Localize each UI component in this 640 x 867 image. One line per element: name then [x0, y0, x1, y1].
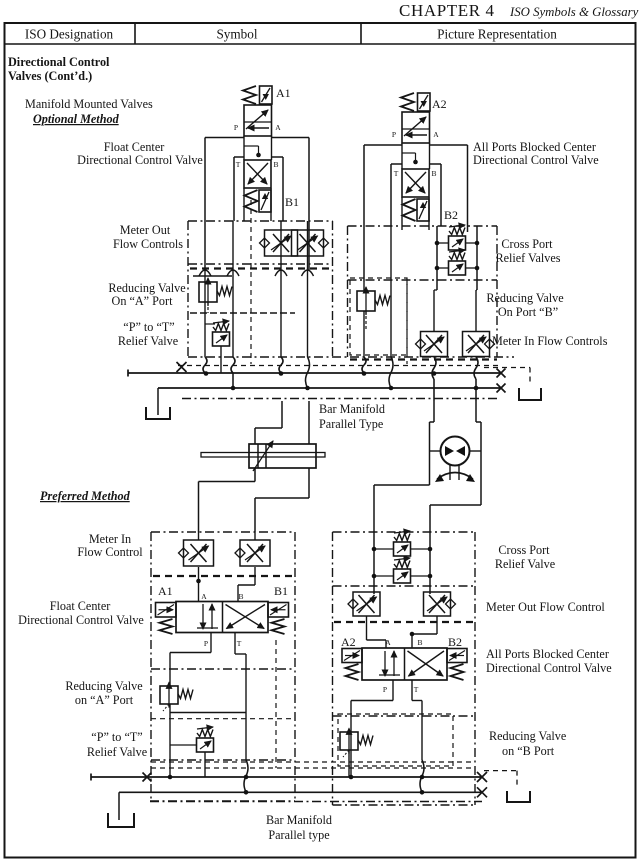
svg-text:Reducing Valve: Reducing Valve	[65, 679, 142, 693]
svg-text:Parallel type: Parallel type	[268, 828, 329, 842]
svg-text:On Port “B”: On Port “B”	[498, 305, 558, 319]
svg-text:Directional Control Valve: Directional Control Valve	[77, 153, 203, 167]
svg-text:T: T	[237, 639, 242, 648]
svg-text:Directional Control Valve: Directional Control Valve	[473, 153, 599, 167]
svg-text:Directional Control Valve: Directional Control Valve	[18, 613, 144, 627]
svg-text:A: A	[201, 592, 207, 601]
svg-text:Symbol: Symbol	[216, 27, 257, 42]
svg-text:Relief Valve: Relief Valve	[87, 745, 147, 759]
svg-text:Manifold Mounted Valves: Manifold Mounted Valves	[25, 97, 153, 111]
svg-text:Directional Control Valve: Directional Control Valve	[486, 661, 612, 675]
svg-text:B1: B1	[285, 195, 299, 209]
svg-text:B: B	[238, 592, 243, 601]
svg-text:A2: A2	[341, 635, 356, 649]
svg-text:Reducing Valve: Reducing Valve	[108, 281, 185, 295]
svg-text:on “B Port: on “B Port	[502, 744, 555, 758]
svg-text:Cross Port: Cross Port	[498, 543, 550, 557]
svg-text:Float Center: Float Center	[50, 599, 111, 613]
svg-text:P: P	[204, 639, 208, 648]
svg-text:P: P	[392, 130, 396, 139]
svg-text:ISO Symbols & Glossary: ISO Symbols & Glossary	[509, 5, 639, 19]
svg-text:Bar Manifold: Bar Manifold	[319, 402, 385, 416]
svg-text:Reducing Valve: Reducing Valve	[489, 729, 566, 743]
svg-text:Meter Out: Meter Out	[120, 223, 171, 237]
svg-text:Relief Valves: Relief Valves	[495, 251, 560, 265]
svg-text:on “A” Port: on “A” Port	[75, 693, 134, 707]
svg-text:P: P	[234, 123, 238, 132]
svg-text:Cross Port: Cross Port	[501, 237, 553, 251]
svg-text:Bar Manifold: Bar Manifold	[266, 813, 332, 827]
svg-text:On “A” Port: On “A” Port	[112, 294, 174, 308]
svg-text:A: A	[275, 123, 281, 132]
svg-text:A: A	[385, 638, 391, 647]
svg-text:Meter Out Flow Control: Meter Out Flow Control	[486, 600, 605, 614]
svg-text:Directional Control: Directional Control	[8, 55, 110, 69]
svg-text:Relief Valve: Relief Valve	[495, 557, 555, 571]
svg-text:“P” to “T”: “P” to “T”	[123, 320, 174, 334]
svg-text:P: P	[383, 685, 387, 694]
svg-text:Parallel Type: Parallel Type	[319, 417, 383, 431]
svg-text:A1: A1	[158, 584, 173, 598]
svg-text:B: B	[431, 169, 436, 178]
svg-text:B: B	[273, 160, 278, 169]
svg-text:T: T	[394, 169, 399, 178]
svg-text:A: A	[433, 130, 439, 139]
svg-text:Flow Controls: Flow Controls	[113, 237, 183, 251]
svg-text:CHAPTER 4: CHAPTER 4	[399, 1, 495, 20]
svg-text:All Ports Blocked Center: All Ports Blocked Center	[473, 140, 596, 154]
svg-text:T: T	[236, 160, 241, 169]
svg-text:B: B	[417, 638, 422, 647]
svg-text:Valves (Cont’d.): Valves (Cont’d.)	[8, 69, 92, 83]
svg-text:Preferred Method: Preferred Method	[40, 489, 131, 503]
svg-text:B2: B2	[444, 208, 458, 222]
svg-text:“P” to “T”: “P” to “T”	[91, 730, 142, 744]
svg-text:A1: A1	[276, 86, 291, 100]
svg-text:Flow Control: Flow Control	[77, 545, 143, 559]
svg-text:Optional Method: Optional Method	[33, 112, 120, 126]
svg-text:Relief Valve: Relief Valve	[118, 334, 178, 348]
svg-text:Float Center: Float Center	[104, 140, 165, 154]
svg-text:All Ports Blocked Center: All Ports Blocked Center	[486, 647, 609, 661]
svg-text:Meter In Flow Controls: Meter In Flow Controls	[492, 334, 608, 348]
svg-text:ISO Designation: ISO Designation	[25, 27, 114, 42]
svg-text:Meter In: Meter In	[89, 532, 131, 546]
svg-text:Reducing Valve: Reducing Valve	[486, 291, 563, 305]
svg-text:Picture Representation: Picture Representation	[437, 27, 557, 42]
svg-text:T: T	[414, 685, 419, 694]
svg-text:A2: A2	[432, 97, 447, 111]
svg-text:B1: B1	[274, 584, 288, 598]
svg-text:B2: B2	[448, 635, 462, 649]
